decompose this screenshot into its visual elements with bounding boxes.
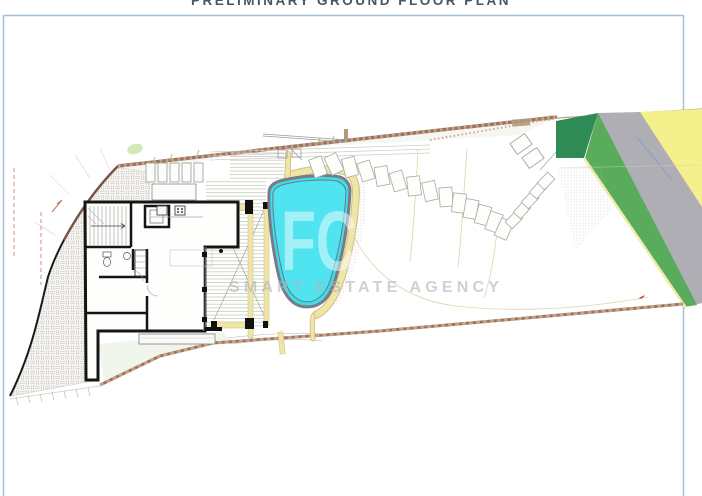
terrace: [139, 334, 215, 344]
watermark-logo: FC: [281, 194, 357, 288]
planters-row: [146, 163, 203, 200]
site-plan-drawing: FC SMART ESTATE AGENCY: [0, 0, 702, 496]
closet-shelves: [135, 250, 146, 276]
green-shrub: [126, 142, 144, 156]
watermark-tagline: SMART ESTATE AGENCY: [229, 279, 503, 296]
drawing-sheet: PRELIMINARY GROUND FLOOR PLAN: [0, 0, 702, 496]
garden-steps: [510, 134, 556, 170]
